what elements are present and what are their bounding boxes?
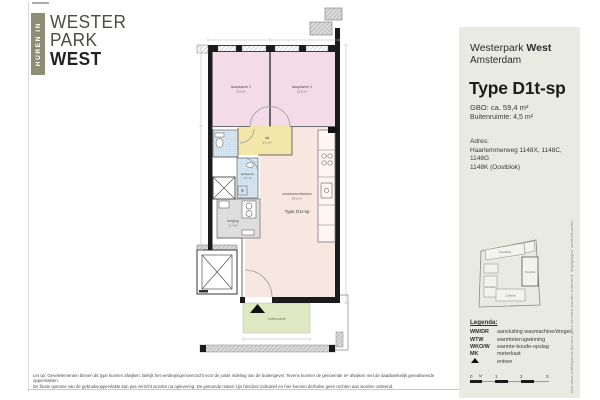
label-hal: hal (265, 136, 270, 140)
legend-row-entree: entree (470, 358, 574, 365)
floor-plan: slaapkamer 2 9,5 m² slaapkamer 1 12,5 m²… (185, 5, 355, 385)
mk-box (328, 127, 337, 133)
project-name-bold: West (526, 42, 551, 54)
scale-label-3: 3 (546, 374, 549, 379)
buitenruimte-line: Buitenruimte: 4,5 m² (470, 114, 533, 121)
meter-cabinet-box (219, 201, 229, 208)
label-slaapkamer-2-area: 9,5 m² (237, 90, 246, 94)
logo-vertical-label: HUREN IN (35, 22, 42, 66)
legend-key: WM/DR (470, 329, 497, 335)
legend-row-mk: MK meterkast (470, 351, 574, 358)
legend-label: entree (497, 359, 512, 365)
project-name-regular: Westerpark (470, 42, 526, 54)
legend-label: aansluiting wasmachine/droger (497, 329, 571, 335)
address-line-2: 1148K (Oostblok) (470, 164, 580, 173)
shaft-small (213, 177, 235, 199)
scale-segment (521, 380, 534, 383)
site-label-north: Noordblok (499, 250, 512, 254)
scale-label-m: M (479, 374, 482, 378)
westerpark-west-logo: HUREN IN WESTER PARK WEST (31, 13, 132, 75)
site-label-east: Oostblok (525, 270, 536, 274)
kitchen-counter (318, 130, 335, 242)
site-block-west-upper (484, 264, 498, 273)
scale-label-2: 2 (520, 374, 523, 379)
label-slaapkamer-1-area: 12,5 m² (297, 90, 308, 94)
entree-triangle-icon (470, 358, 497, 365)
label-berging-area: 2,7 m² (229, 224, 238, 228)
legend-key: WKO/W (470, 344, 497, 350)
outside-structure-stairs (310, 22, 332, 35)
scale-label-1: 1 (495, 374, 498, 379)
label-woonkamer: woonkamer/keuken (282, 192, 312, 196)
crop-mark (32, 2, 49, 4)
label-slaapkamer-2: slaapkamer 2 (231, 85, 251, 89)
address-block: Adres: Haarlemmerweg 1148X, 1148C, 1148G… (470, 138, 580, 172)
gallery-edge-hatched (200, 345, 335, 352)
gbo-line: GBO: ca. 59,4 m² (470, 103, 528, 112)
label-woonkamer-area: 24,0 m² (292, 197, 303, 201)
project-city: Amsterdam (470, 55, 521, 66)
side-disclaimer: Aan deze plattegrond kunnen geen rechten… (569, 219, 574, 394)
legend-key: MK (470, 351, 497, 357)
legend-label: warmteterugwinning (497, 337, 545, 343)
project-name: Westerpark West (470, 42, 551, 54)
legend-row-wtw: WTW warmteterugwinning (470, 336, 574, 343)
legend: Legenda: WM/DR aansluiting wasmachine/dr… (470, 319, 574, 365)
footer-line-2: De finale opname van de gebruiksoppervla… (33, 384, 451, 389)
scale-segment (495, 380, 508, 383)
label-slaapkamer-1: slaapkamer 1 (292, 85, 312, 89)
label-badkamer-area: 4,7 m² (243, 176, 252, 180)
brochure-page: HUREN IN WESTER PARK WEST (0, 0, 600, 400)
address-label: Adres: (470, 138, 580, 147)
logo-huren-in-bar: HUREN IN (31, 13, 45, 75)
washer-dryer-icon (242, 201, 256, 218)
label-hal-area: 3,1 m² (263, 141, 272, 145)
legend-label: warmte-koude-opslag (497, 344, 549, 350)
label-berging: berging (227, 219, 238, 223)
type-title: Type D1t-sp (469, 78, 566, 99)
elevator-shaft (197, 245, 237, 294)
label-type: Type D1t-sp (285, 209, 310, 214)
footer-line-1: Let op: Gevelelementen binnen dit type k… (33, 373, 451, 384)
address-line-1: Haarlemmerweg 1148X, 1148C, 1148G (470, 147, 580, 164)
info-panel: Westerpark West Amsterdam Type D1t-sp GB… (459, 27, 580, 398)
scale-label-0: 0 (470, 374, 473, 379)
legend-key: WTW (470, 337, 497, 343)
logo-line-park: PARK (50, 31, 126, 49)
legend-label: meterkast (497, 351, 521, 357)
outside-structure-upper (325, 8, 342, 20)
logo-wordmark: WESTER PARK WEST (50, 13, 126, 75)
site-label-west: Westblok (485, 285, 497, 289)
outside-wall-segment (335, 28, 340, 45)
legend-title: Legenda: (470, 319, 574, 326)
site-label-south: Zuidblok (505, 294, 516, 298)
toilet-icon (215, 133, 224, 148)
footer-disclaimer: Let op: Gevelelementen binnen dit type k… (33, 373, 451, 389)
logo-line-west: WEST (50, 49, 126, 68)
storage-shelf (242, 230, 254, 235)
scale-bar: 0 M 1 2 3 (470, 374, 552, 386)
frame-vertical-line (28, 2, 29, 392)
legend-row-wkow: WKO/W warmte-koude-opslag (470, 343, 574, 350)
site-block-north-wing (524, 241, 535, 253)
washbasin-icon (247, 163, 254, 168)
legend-row-wmdr: WM/DR aansluiting wasmachine/droger (470, 329, 574, 336)
site-map: Noordblok Oostblok Zuidblok Westblok (476, 235, 546, 315)
label-buitenruimte: buitenruimte (268, 317, 286, 321)
scale-segment (470, 380, 482, 383)
